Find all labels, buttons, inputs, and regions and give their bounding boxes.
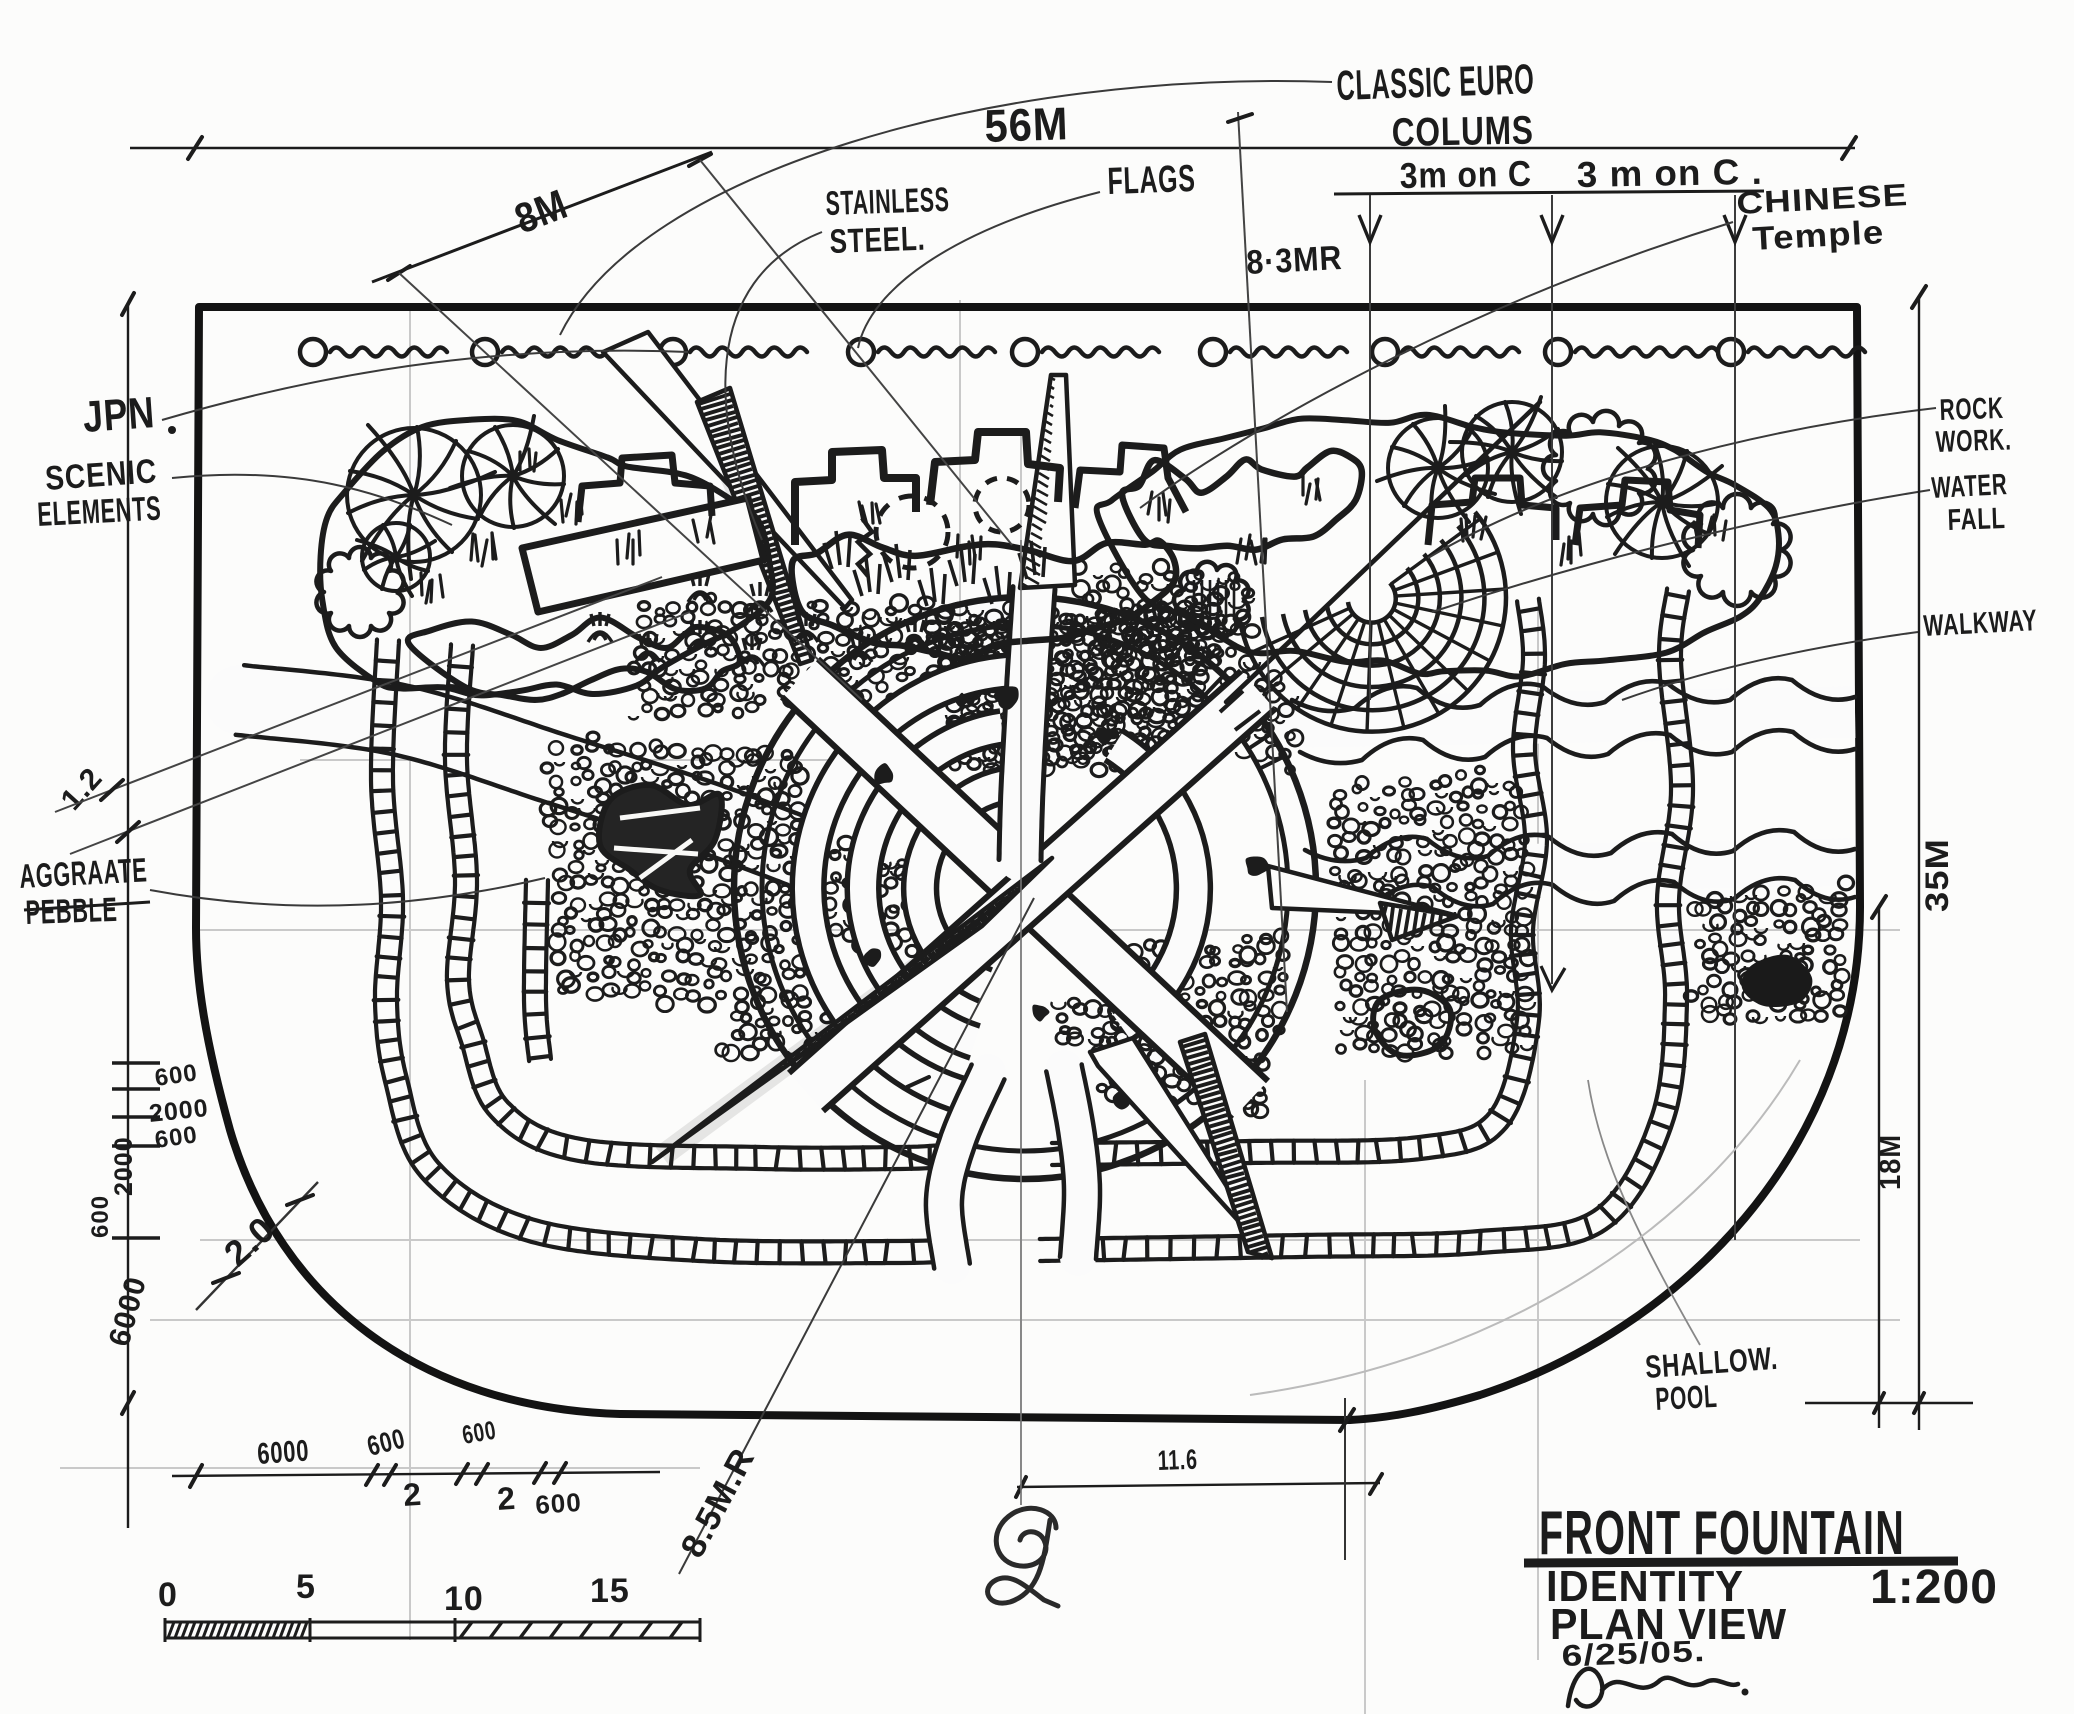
- svg-text:PEBBLE: PEBBLE: [25, 891, 118, 932]
- svg-text:ROCK: ROCK: [1939, 392, 2004, 427]
- svg-text:5: 5: [296, 1568, 316, 1606]
- svg-text:Temple: Temple: [1751, 213, 1885, 257]
- svg-text:11.6: 11.6: [1157, 1444, 1198, 1476]
- svg-text:1:200: 1:200: [1870, 1561, 1998, 1614]
- svg-text:18M: 18M: [1874, 1134, 1907, 1190]
- svg-text:2: 2: [496, 1480, 517, 1517]
- svg-text:600: 600: [87, 1195, 114, 1238]
- svg-text:8·3MR: 8·3MR: [1245, 239, 1343, 282]
- svg-text:WATER: WATER: [1931, 468, 2009, 505]
- svg-text:JPN: JPN: [81, 388, 156, 442]
- svg-text:STEEL.: STEEL.: [829, 220, 926, 261]
- svg-text:15: 15: [590, 1572, 630, 1610]
- svg-text:COLUMS: COLUMS: [1391, 109, 1534, 155]
- svg-text:2: 2: [402, 1476, 423, 1513]
- svg-text:56M: 56M: [984, 97, 1070, 152]
- svg-text:0: 0: [158, 1576, 178, 1614]
- svg-text:FALL: FALL: [1947, 502, 2006, 537]
- svg-text:6/25/05.: 6/25/05.: [1561, 1635, 1706, 1673]
- svg-text:POOL: POOL: [1654, 1378, 1718, 1417]
- svg-text:STAINLESS: STAINLESS: [825, 181, 950, 223]
- svg-text:2000: 2000: [110, 1136, 138, 1196]
- svg-text:600: 600: [534, 1487, 582, 1520]
- svg-text:ELEMENTS: ELEMENTS: [36, 490, 162, 534]
- svg-text:10: 10: [444, 1580, 484, 1618]
- svg-text:WALKWAY: WALKWAY: [1923, 604, 2039, 643]
- svg-text:3m on C: 3m on C: [1399, 153, 1532, 196]
- svg-text:FLAGS: FLAGS: [1107, 158, 1196, 203]
- svg-text:35M: 35M: [1919, 838, 1955, 912]
- svg-text:WORK.: WORK.: [1935, 423, 2012, 459]
- svg-text:600: 600: [460, 1414, 499, 1449]
- svg-text:6000: 6000: [256, 1434, 310, 1471]
- svg-text:CLASSIC EURO: CLASSIC EURO: [1336, 55, 1536, 109]
